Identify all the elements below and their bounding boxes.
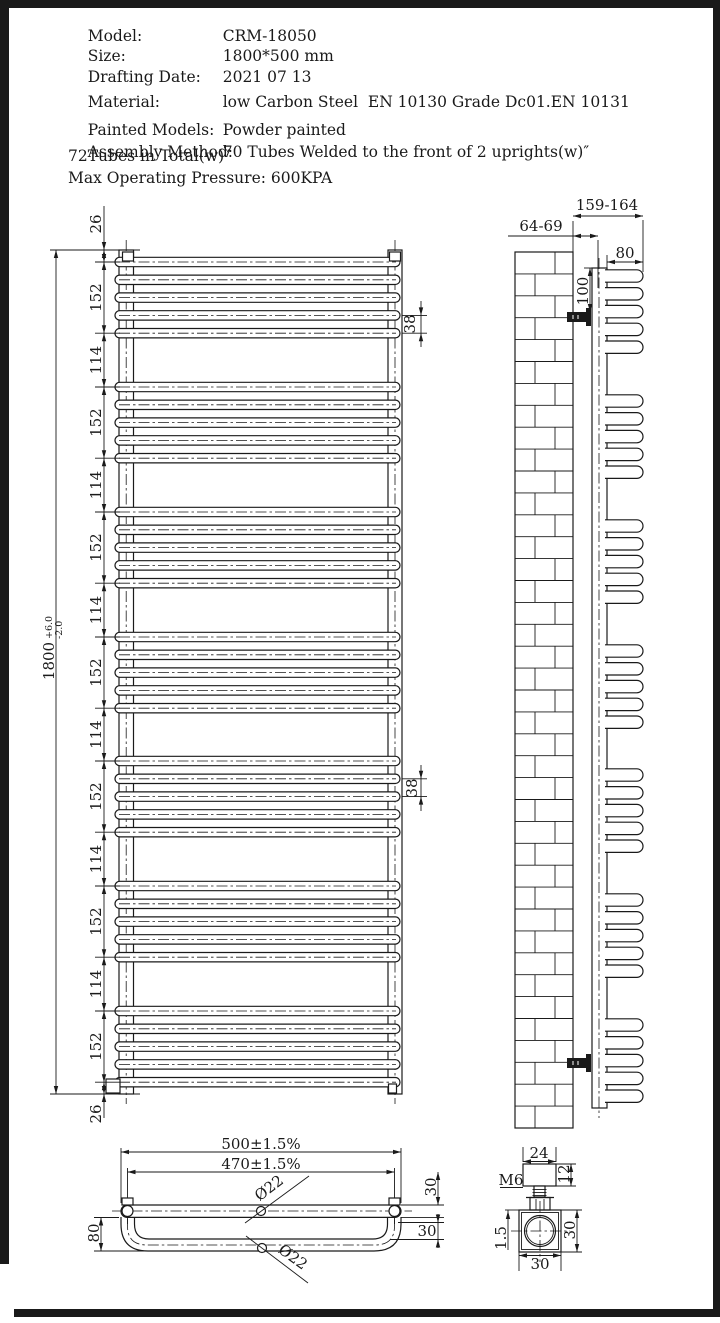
wall-bricks — [515, 252, 573, 1128]
chain-dim-label: 152 — [87, 907, 105, 936]
tube-loop — [605, 965, 643, 977]
wall-thickness-value: 1.5 — [492, 1226, 510, 1250]
arrowhead — [54, 1086, 58, 1094]
tube-loop — [605, 591, 643, 603]
arrowhead — [102, 708, 106, 716]
thread-value: M6 — [499, 1171, 524, 1189]
arrowhead — [573, 214, 581, 218]
right-upright-top-plug — [390, 252, 401, 261]
tube-loop — [605, 270, 643, 282]
arrowhead — [419, 333, 423, 341]
front-tube-dia-value: Ø22 — [275, 1240, 311, 1273]
chain-dim-label: 26 — [87, 1104, 105, 1123]
chain-dim-label: 114 — [87, 970, 105, 999]
tube-loop — [605, 822, 643, 834]
arrowhead — [102, 824, 106, 832]
chain-dim-label: 152 — [87, 283, 105, 312]
arrowhead — [575, 1244, 579, 1252]
arrowhead — [128, 1170, 136, 1174]
tube-pitch-dim-top: 38 — [401, 301, 427, 347]
body-width-value: 30 — [530, 1255, 549, 1273]
arrowhead — [102, 878, 106, 886]
left-upright-bottom-plug — [106, 1079, 120, 1093]
arrowhead — [102, 333, 106, 341]
tube-loop — [605, 430, 643, 442]
arrowhead — [102, 583, 106, 591]
body-height-value: 30 — [561, 1220, 579, 1239]
front-view: 2615211415211415211415211415211415211415… — [40, 206, 427, 1124]
tube-loop — [605, 305, 643, 317]
arrowhead — [590, 234, 598, 238]
arrowhead — [121, 1150, 129, 1154]
arrowhead — [548, 1159, 556, 1163]
arrowhead — [102, 325, 106, 333]
chain-dim-label: 114 — [87, 471, 105, 500]
tube-loop — [605, 645, 643, 657]
tube-loop — [605, 894, 643, 906]
arrowhead — [523, 1159, 531, 1163]
tube-loop — [605, 912, 643, 924]
plan-view: 500±1.5% 470±1.5% 80 30 30 — [85, 1135, 444, 1283]
plan-front-tube-inner — [135, 1217, 388, 1239]
tube-loop — [605, 1037, 643, 1049]
rear-tube-dia-value: Ø22 — [251, 1171, 287, 1204]
arrowhead — [436, 1197, 440, 1205]
side-view: 159-164 64-69 80 100 — [508, 196, 643, 1128]
arrowhead — [54, 250, 58, 258]
arrowhead — [102, 242, 106, 250]
front-tubes — [115, 257, 400, 1087]
spec-value: 70 Tubes Welded to the front of 2 uprigh… — [223, 143, 589, 161]
arrowhead — [102, 504, 106, 512]
frame-right — [713, 0, 720, 1317]
overall-height-value: 1800 — [40, 642, 58, 680]
tube-loop — [605, 341, 643, 353]
bracket-cap — [523, 1164, 556, 1186]
tube-loop — [605, 663, 643, 675]
tube-loop — [605, 1019, 643, 1031]
front-tube-dia-callout: Ø22 — [246, 1236, 311, 1283]
arrowhead — [102, 1003, 106, 1011]
chain-dim-label: 152 — [87, 408, 105, 437]
arrowhead — [99, 1218, 103, 1226]
chain-dim-label: 26 — [87, 214, 105, 233]
frame-left — [0, 0, 9, 1264]
tube-loop — [605, 448, 643, 460]
tube-loop — [605, 947, 643, 959]
arrowhead — [506, 1211, 510, 1219]
tube-loop — [605, 413, 643, 425]
offset-a-value: 30 — [422, 1177, 440, 1196]
overall-depth-value: 159-164 — [576, 196, 638, 214]
arrowhead — [102, 886, 106, 894]
tube-loop — [605, 538, 643, 550]
side-tube-loops — [605, 270, 643, 1103]
arrowhead — [419, 771, 423, 779]
tube-loop — [605, 288, 643, 300]
right-upright-bottom-plug — [389, 1084, 397, 1093]
arrowhead — [393, 1150, 401, 1154]
arrowhead — [102, 949, 106, 957]
bracket-detail: 24 12 M6 1.5 30 30 — [492, 1144, 582, 1273]
loop-depth-value: 80 — [615, 244, 634, 262]
arrowhead — [635, 260, 643, 264]
chain-dim-label: 152 — [87, 658, 105, 687]
offset-b-value: 30 — [417, 1222, 436, 1240]
arrowhead — [102, 761, 106, 769]
loop-depth-dimension: 80 — [607, 244, 643, 268]
hole-centres-dimension: 470±1.5% — [128, 1155, 395, 1173]
overall-width-value: 500±1.5% — [221, 1135, 300, 1153]
arrowhead — [99, 1243, 103, 1251]
chain-dim-label: 152 — [87, 533, 105, 562]
tube-loop — [605, 1090, 643, 1102]
tube-loop — [605, 840, 643, 852]
chain-dim-label: 114 — [87, 346, 105, 375]
chain-dim-label: 152 — [87, 782, 105, 811]
arrowhead — [519, 1253, 527, 1257]
tube-loop — [605, 698, 643, 710]
tube-loop — [605, 573, 643, 585]
bracket-offset-value: 100 — [574, 277, 592, 306]
arrowhead — [102, 637, 106, 645]
bracket-stud — [533, 1186, 547, 1197]
arrowhead — [419, 307, 423, 315]
plan-right-upright-section — [389, 1206, 400, 1217]
plan-front-tube-centerline — [128, 1219, 395, 1245]
tube-loop — [605, 804, 643, 816]
arrowhead — [573, 234, 581, 238]
arrowhead — [635, 214, 643, 218]
cap-width-value: 24 — [529, 1144, 548, 1162]
plan-loop-depth-dimension: 80 — [85, 1218, 145, 1252]
arrowhead — [102, 1094, 106, 1102]
tube-loop — [605, 555, 643, 567]
tube-pitch-dim-mid: 38 — [402, 765, 427, 811]
spec-note-total-tubes: 72Tubes in Total(w)″ — [68, 147, 230, 165]
overall-height-tol-minus: -2.0 — [54, 621, 65, 639]
arrowhead — [102, 575, 106, 583]
arrowhead — [436, 1240, 440, 1248]
arrowhead — [553, 1253, 561, 1257]
arrowhead — [102, 629, 106, 637]
chain-dim-label: 114 — [87, 845, 105, 874]
spec-note-pressure: Max Operating Pressure: 600KPA — [68, 169, 332, 187]
bracket-dimensions: 24 12 M6 1.5 30 30 — [492, 1144, 582, 1273]
arrowhead — [102, 450, 106, 458]
plan-left-bracket-tab — [122, 1198, 133, 1205]
arrowhead — [102, 957, 106, 965]
tube-loop — [605, 929, 643, 941]
tube-loop — [605, 1072, 643, 1084]
chain-dim-label: 114 — [87, 596, 105, 625]
wall-gap-value: 64-69 — [519, 217, 562, 235]
tube-loop — [605, 466, 643, 478]
arrowhead — [102, 379, 106, 387]
arrowhead — [102, 832, 106, 840]
arrowhead — [436, 1172, 440, 1180]
radiator-technical-drawing: 2615211415211415211415211415211415211415… — [0, 0, 720, 1323]
plan-loop-depth-value: 80 — [85, 1223, 103, 1242]
arrowhead — [102, 753, 106, 761]
plan-right-bracket-tab — [389, 1198, 400, 1205]
tube-pitch-value-mid: 38 — [403, 778, 421, 797]
left-upright-top-plug — [123, 252, 134, 261]
tube-loop — [605, 323, 643, 335]
arrowhead — [607, 260, 615, 264]
tube-loop — [605, 395, 643, 407]
tube-loop — [605, 769, 643, 781]
tube-pitch-value-top: 38 — [401, 314, 419, 333]
arrowhead — [102, 458, 106, 466]
arrowhead — [102, 387, 106, 395]
arrowhead — [102, 512, 106, 520]
arrowhead — [575, 1210, 579, 1218]
chain-dim-label: 152 — [87, 1032, 105, 1061]
side-upright — [592, 268, 607, 1108]
arrowhead — [102, 1011, 106, 1019]
arrowhead — [102, 262, 106, 270]
arrowhead — [102, 700, 106, 708]
hole-centres-value: 470±1.5% — [221, 1155, 300, 1173]
tube-loop — [605, 520, 643, 532]
tube-loop — [605, 680, 643, 692]
tube-loop — [605, 787, 643, 799]
frame-top — [0, 0, 720, 8]
frame-bottom — [14, 1309, 720, 1317]
tube-loop — [605, 1054, 643, 1066]
plan-left-upright-section — [122, 1206, 133, 1217]
arrowhead — [387, 1170, 395, 1174]
tube-loop — [605, 716, 643, 728]
chain-dim-label: 114 — [87, 720, 105, 749]
overall-height-dimension: 1800 +6.0 -2.0 — [40, 250, 65, 1094]
